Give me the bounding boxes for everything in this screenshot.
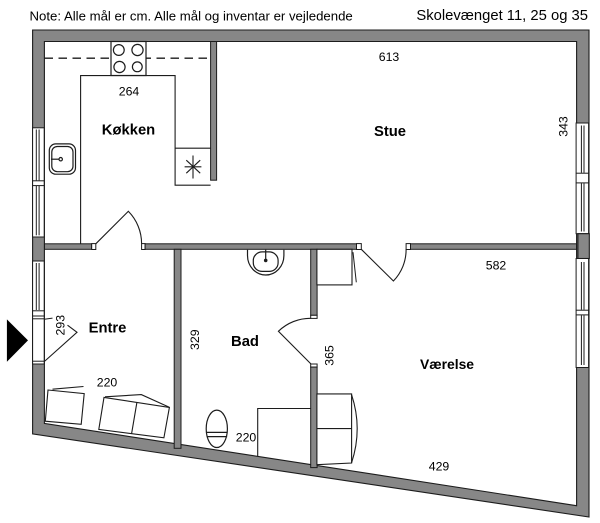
svg-text:Note: Alle mål er cm. Alle mål: Note: Alle mål er cm. Alle mål og invent… [30,9,353,24]
svg-text:Bad: Bad [231,334,259,350]
svg-text:264: 264 [119,85,140,99]
svg-text:220: 220 [97,376,118,390]
svg-text:Skolevænget 11, 25 og 35: Skolevænget 11, 25 og 35 [416,8,588,24]
svg-text:343: 343 [557,116,571,137]
svg-text:Stue: Stue [374,124,406,140]
svg-text:365: 365 [322,345,336,366]
svg-text:Værelse: Værelse [420,356,474,372]
svg-text:293: 293 [53,315,67,336]
svg-text:582: 582 [486,259,507,273]
svg-text:429: 429 [429,460,450,474]
svg-text:Køkken: Køkken [102,123,155,139]
svg-text:Entre: Entre [89,321,127,337]
svg-text:613: 613 [379,50,400,64]
svg-text:220: 220 [236,431,257,445]
svg-text:329: 329 [188,329,202,350]
